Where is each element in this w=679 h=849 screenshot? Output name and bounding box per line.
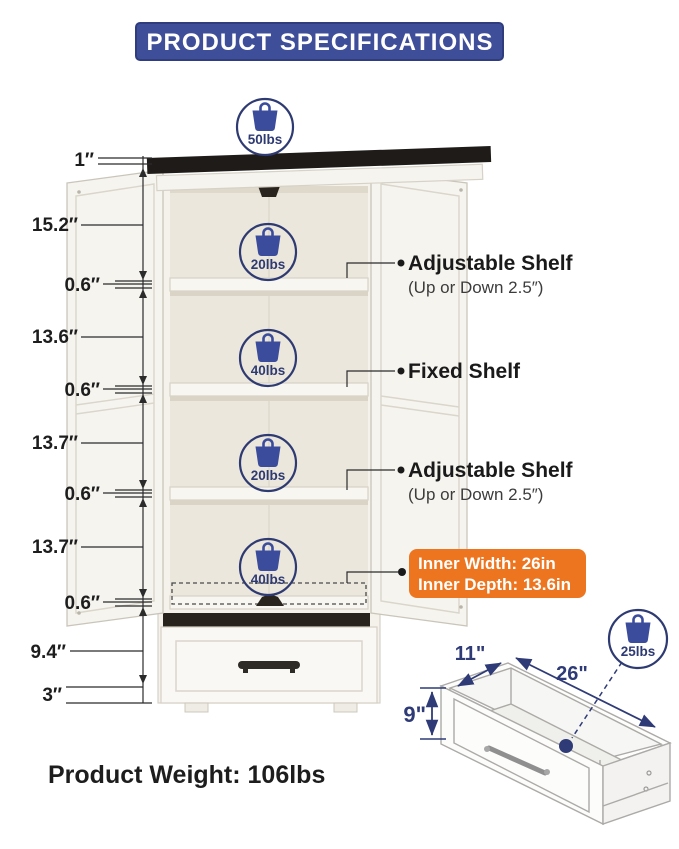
callout-adjustable-shelf-2: Adjustable Shelf — [408, 459, 574, 482]
dim-13-7in-1: 13.7″ — [32, 433, 78, 454]
cabinet-foot-left — [185, 703, 208, 712]
title-banner: PRODUCT SPECIFICATIONS — [136, 23, 503, 60]
drawer-width-dim: 26" — [556, 663, 588, 685]
callout-adjustable-shelf-2-sub: (Up or Down 2.5″) — [408, 485, 543, 504]
drawer-opening-shadow — [163, 613, 370, 627]
inner-width-text: Inner Width: 26in — [418, 554, 556, 573]
dim-0-6in-3: 0.6″ — [64, 484, 100, 505]
capacity-badge-top: 50lbs — [237, 99, 293, 155]
drawer-badge-dot — [559, 739, 573, 753]
dim-0-6in-2: 0.6″ — [64, 380, 100, 401]
cabinet-drawer — [161, 627, 377, 703]
badge-drawer-label: 25lbs — [621, 644, 656, 659]
badge-shelf2-label: 40lbs — [251, 363, 286, 378]
drawer-handle — [238, 661, 300, 669]
cabinet-foot-right — [334, 703, 357, 712]
dim-13-7in-2: 13.7″ — [32, 537, 78, 558]
badge-shelf3-label: 20lbs — [251, 468, 286, 483]
product-weight-text: Product Weight: 106lbs — [48, 761, 325, 789]
shelf-3 — [170, 487, 368, 505]
badge-shelf1-label: 20lbs — [251, 257, 286, 272]
dim-3in: 3″ — [42, 685, 62, 706]
dim-15-2in: 15.2″ — [32, 215, 78, 236]
badge-shelf4-label: 40lbs — [251, 572, 286, 587]
dim-9-4in: 9.4″ — [30, 642, 66, 663]
callout-adjustable-shelf-1-sub: (Up or Down 2.5″) — [408, 278, 543, 297]
dim-0-6in-4: 0.6″ — [64, 593, 100, 614]
inner-depth-text: Inner Depth: 13.6in — [418, 575, 571, 594]
callout-fixed-shelf: Fixed Shelf — [408, 360, 521, 383]
dim-0-6in-1: 0.6″ — [64, 275, 100, 296]
dim-1in: 1″ — [74, 150, 94, 171]
page-title: PRODUCT SPECIFICATIONS — [147, 29, 494, 56]
callout-adjustable-shelf-1: Adjustable Shelf — [408, 252, 574, 275]
drawer-height-dim: 9" — [403, 702, 426, 727]
dim-13-6in: 13.6″ — [32, 327, 78, 348]
badge-top-label: 50lbs — [248, 132, 283, 147]
capacity-badge-drawer: 25lbs — [609, 610, 667, 668]
product-spec-sheet: PRODUCT SPECIFICATIONS — [0, 0, 679, 849]
drawer-depth-dim: 11" — [455, 643, 486, 665]
